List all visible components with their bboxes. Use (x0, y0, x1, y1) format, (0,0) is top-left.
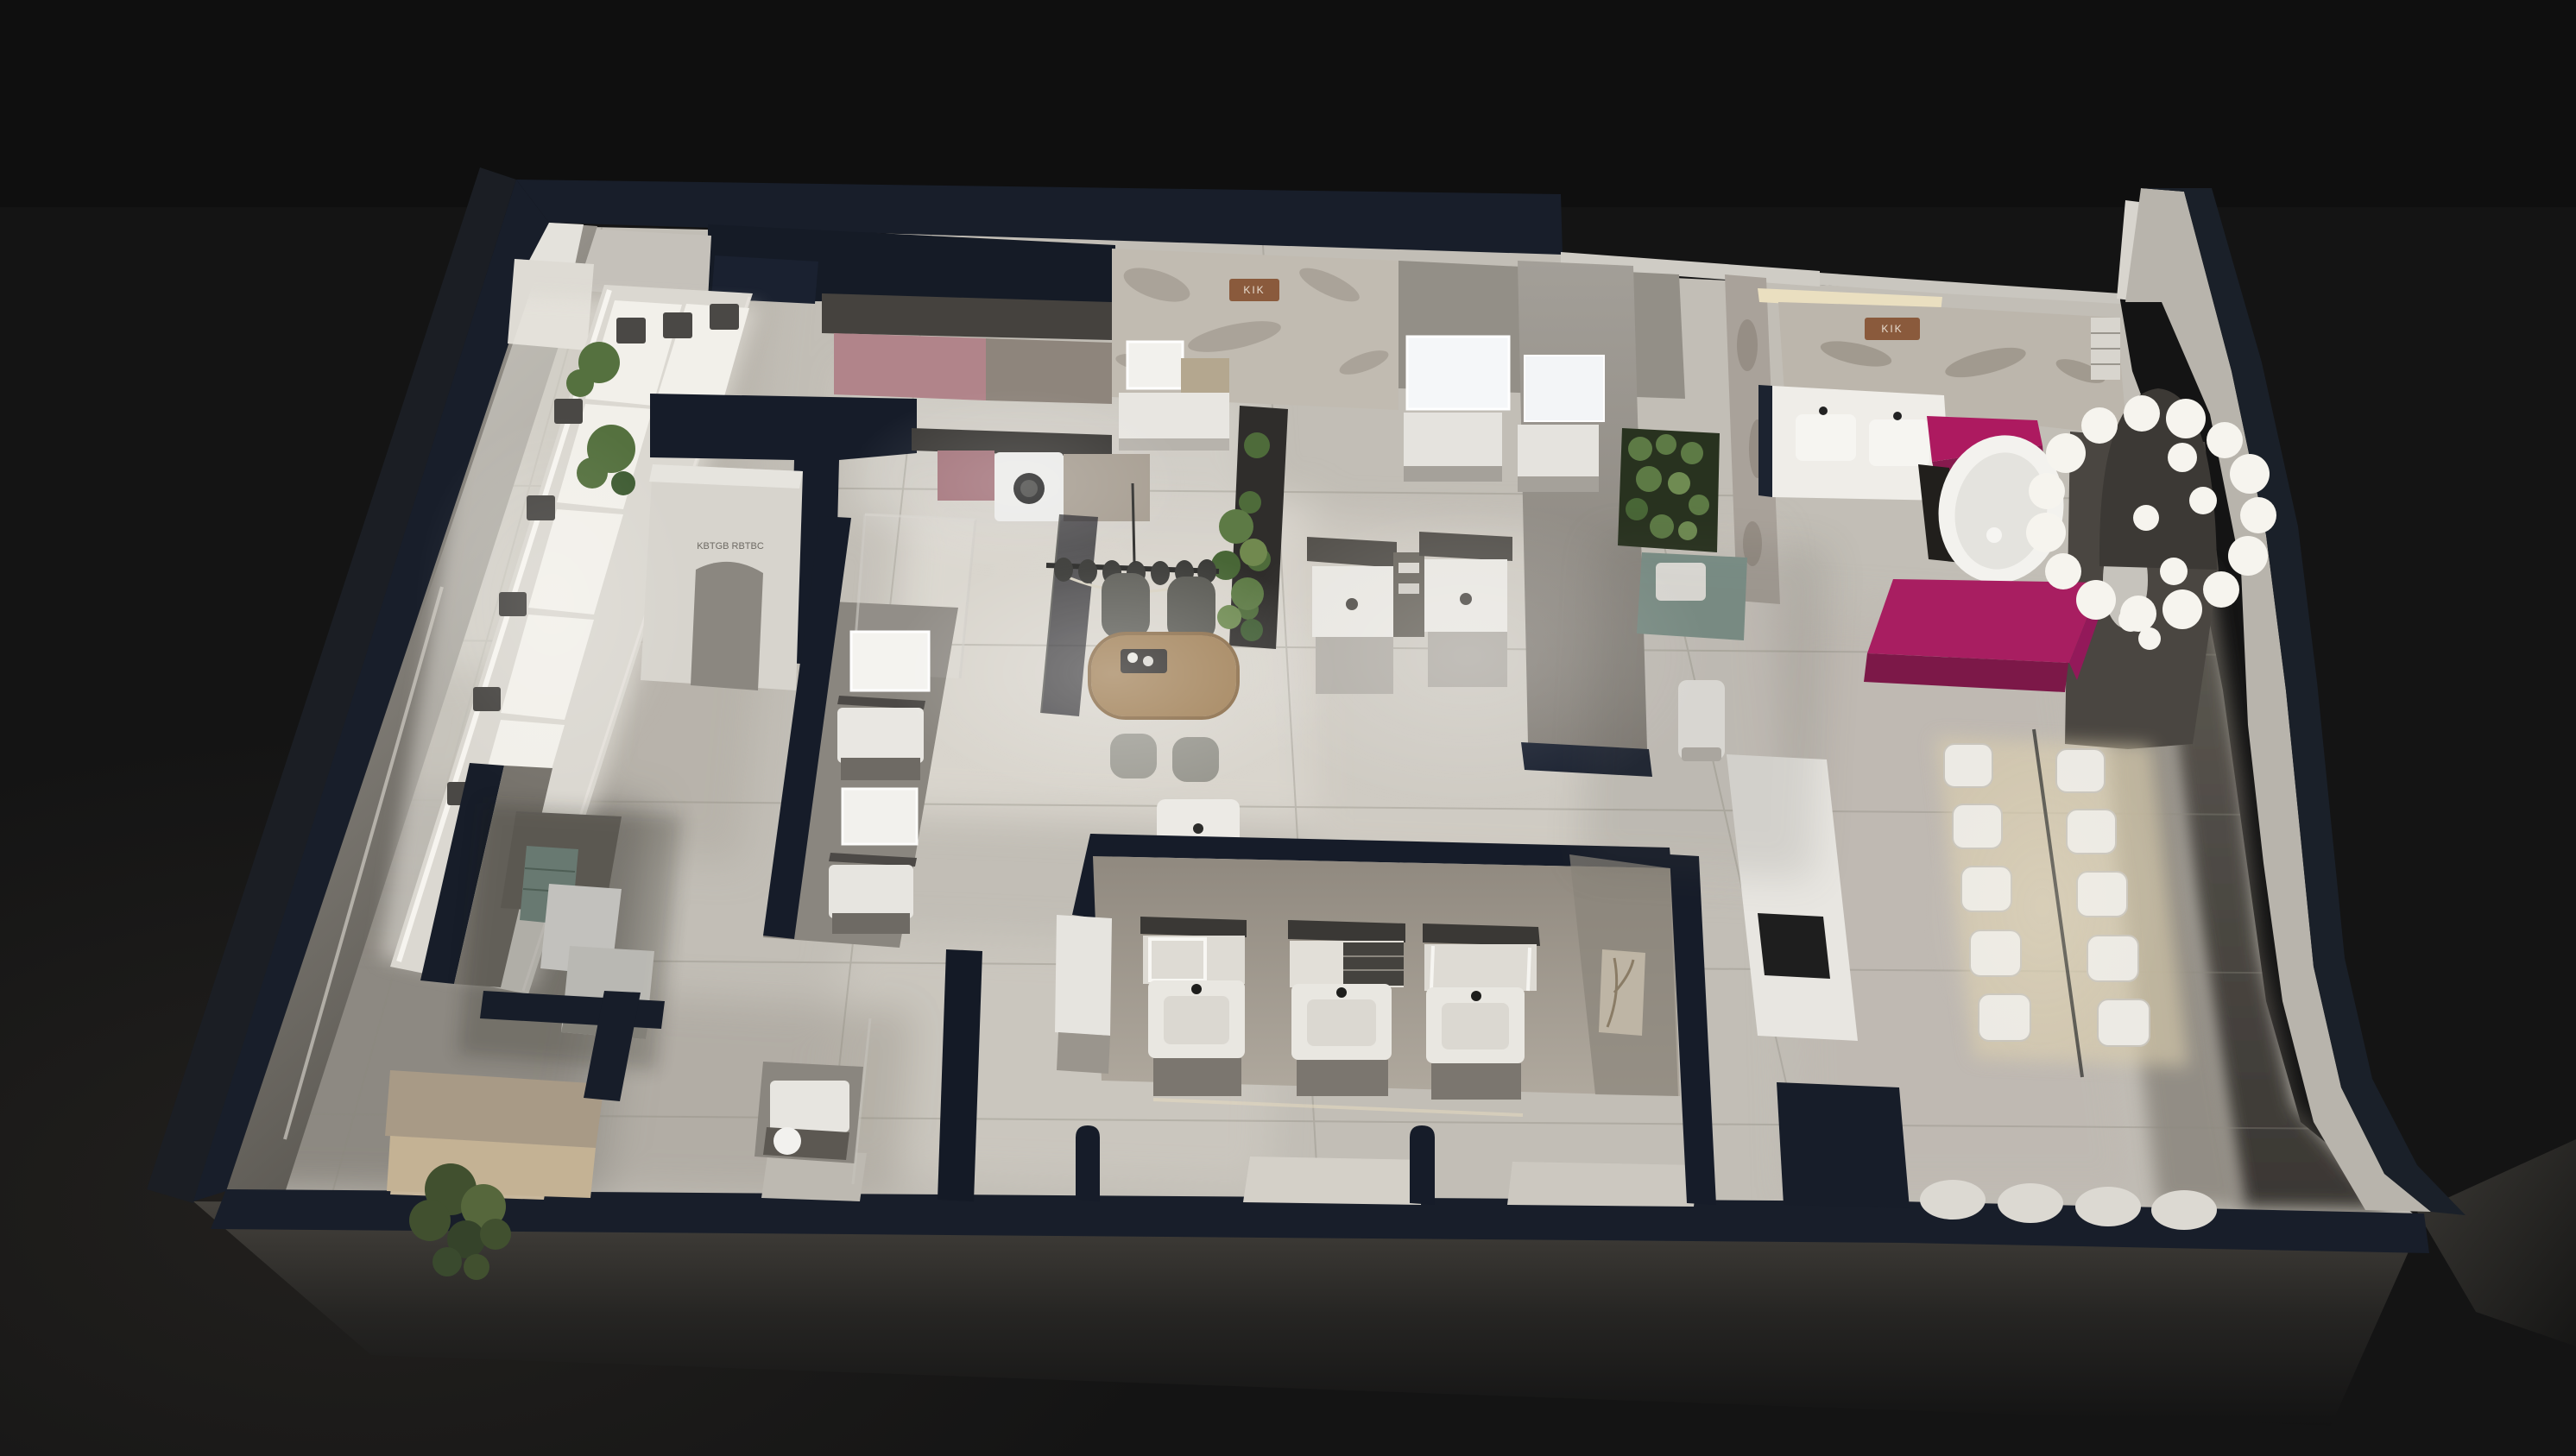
svg-text:KIK: KIK (1243, 284, 1265, 296)
svg-text:KBTGB RBTBC: KBTGB RBTBC (697, 541, 764, 552)
svg-text:KIK: KIK (1881, 323, 1903, 335)
